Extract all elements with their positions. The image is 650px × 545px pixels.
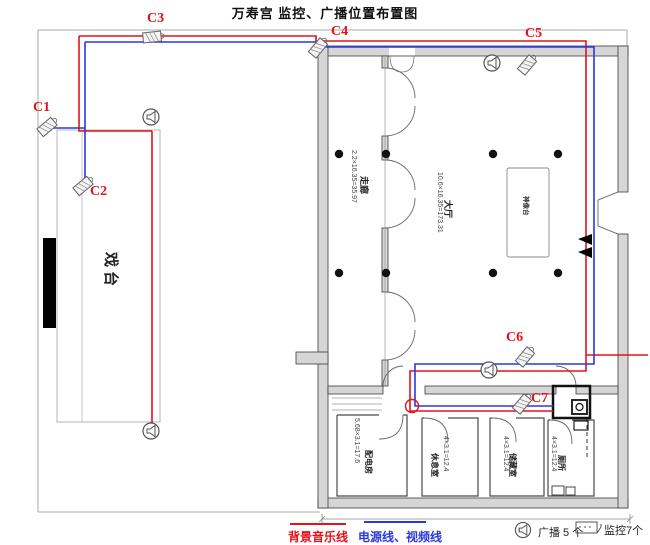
altar-label: 神像台 — [522, 196, 532, 216]
rest-room-dims: 4×3.1=12.4 — [442, 436, 449, 471]
speaker-icon-hall-bottom — [481, 362, 497, 378]
storage-room-label: 储藏室 — [507, 453, 518, 477]
floor-plan-canvas: 万寿宫 监控、广播位置布置图 C1 C2 C3 C4 C5 C6 C7 戏台 2… — [0, 0, 650, 545]
legend-speaker-icon — [515, 522, 530, 537]
speaker-icon-wall — [578, 234, 592, 258]
speaker-icon-stage-bottom — [143, 423, 159, 439]
rest-room-label: 休息室 — [429, 453, 440, 477]
legend-video-line-swatch — [364, 521, 426, 523]
camera-label-c7: C7 — [531, 391, 548, 407]
legend-music-line-swatch — [290, 523, 346, 525]
camera-label-c1: C1 — [33, 100, 50, 116]
building-walls — [296, 46, 628, 508]
camera-icon-c1 — [37, 115, 60, 136]
corridor-label: 走廊 — [358, 176, 371, 194]
entrance-steps — [332, 398, 382, 410]
camera-label-c6: C6 — [506, 330, 523, 346]
stage-back-wall — [43, 238, 56, 328]
corridor-dims: 2.2×16.35=35.97 — [350, 150, 357, 203]
camera-label-c2: C2 — [90, 184, 107, 200]
power-room-dims: 5.68×3.1=17.6 — [353, 418, 360, 463]
legend-broadcast-label: 广播 5 个 — [538, 524, 583, 540]
legend-video-label: 电源线、视频线 — [358, 528, 442, 545]
stage-label: 戏台 — [101, 252, 122, 290]
right-wall-door — [598, 192, 618, 234]
site-boundary — [38, 30, 627, 512]
camera-icon-c3 — [143, 31, 165, 43]
page-title: 万寿宫 监控、广播位置布置图 — [0, 3, 650, 22]
hall-label: 大厅 — [442, 200, 455, 218]
power-room-label: 配电房 — [363, 450, 374, 474]
hall-bottom-doors — [383, 366, 576, 386]
divider-door-arcs — [385, 68, 415, 360]
top-entrance-door — [389, 47, 415, 73]
camera-label-c5: C5 — [525, 26, 542, 42]
camera-label-c3: C3 — [147, 11, 164, 27]
camera-label-c4: C4 — [331, 24, 348, 40]
legend-monitor-label: 监控7个 — [604, 522, 643, 538]
toilet-label: 厕所 — [556, 455, 567, 471]
speaker-icon-stage-top — [143, 109, 159, 125]
legend-music-label: 背景音乐线 — [288, 528, 348, 545]
speaker-icon-hall-top — [484, 55, 500, 71]
